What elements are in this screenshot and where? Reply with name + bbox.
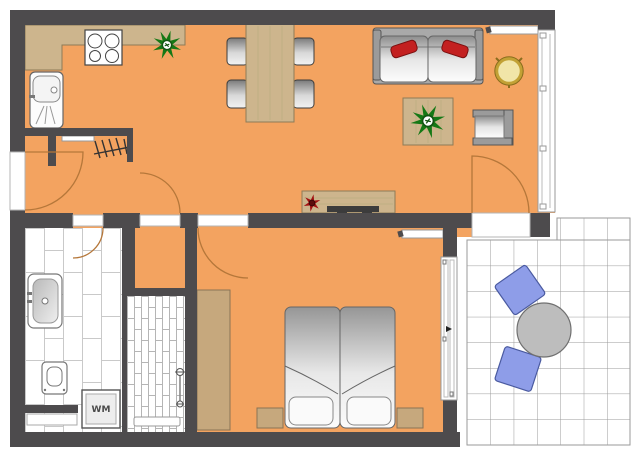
wall-hall-stub bbox=[127, 136, 133, 162]
wall-closet-left bbox=[122, 228, 135, 296]
wall-niche bbox=[48, 136, 56, 166]
wall-shelf-hall bbox=[62, 136, 94, 141]
coffee-table bbox=[403, 98, 453, 145]
wall-bath-stub bbox=[25, 405, 78, 413]
wall-top bbox=[10, 10, 555, 25]
armchair-seat bbox=[475, 116, 504, 138]
kitchen-sink bbox=[29, 72, 63, 128]
sink-drain bbox=[51, 87, 57, 93]
wall-bedroom-right-upper bbox=[443, 228, 457, 257]
terrace-door-step bbox=[472, 213, 530, 237]
wall-mid bbox=[103, 213, 140, 228]
living-room-window bbox=[538, 30, 555, 212]
wall-left-lower bbox=[10, 210, 25, 447]
terrace-round-table bbox=[517, 303, 571, 357]
shower-threshold bbox=[134, 417, 180, 426]
wall-left-upper bbox=[10, 10, 25, 152]
nightstand bbox=[257, 408, 283, 428]
wall-bedroom-right-lower bbox=[443, 400, 457, 432]
nightstand bbox=[397, 408, 423, 428]
pillow bbox=[289, 397, 333, 425]
pillow bbox=[347, 397, 391, 425]
bathroom-shelf bbox=[27, 414, 77, 425]
armchair bbox=[473, 110, 513, 145]
wall-mid bbox=[180, 213, 198, 228]
wall-bottom bbox=[10, 432, 460, 447]
floor-plan-drawing: WM bbox=[0, 0, 640, 454]
wall-shower-partition bbox=[122, 296, 127, 432]
sofa bbox=[373, 28, 483, 84]
entrance-door-opening bbox=[10, 152, 25, 210]
dining-chair bbox=[227, 80, 248, 108]
burner bbox=[88, 34, 102, 48]
dining-chair bbox=[227, 38, 248, 65]
closet-door-opening bbox=[140, 215, 180, 226]
shower-floor-tiles bbox=[127, 296, 185, 432]
wall-mid bbox=[25, 213, 73, 228]
burner bbox=[90, 51, 101, 62]
wardrobe bbox=[197, 290, 230, 430]
wall-kitchen-hall bbox=[25, 128, 133, 136]
bathroom-door-opening bbox=[73, 215, 103, 226]
floor-plan-canvas: WM bbox=[0, 0, 640, 454]
wall-bedroom-bath bbox=[185, 228, 197, 432]
washbasin bbox=[27, 274, 62, 328]
sideboard bbox=[302, 191, 395, 214]
double-bed bbox=[285, 307, 395, 428]
dining-chair bbox=[293, 38, 314, 65]
wall-shower-top bbox=[122, 288, 185, 296]
washing-machine: WM bbox=[82, 390, 120, 428]
wall-mid-corner bbox=[530, 213, 550, 237]
terrace-tiles-notch bbox=[557, 218, 630, 240]
sink-faucet bbox=[29, 95, 35, 98]
wall-mid bbox=[248, 213, 472, 228]
bedroom-sliding-door bbox=[441, 257, 457, 400]
burner bbox=[105, 34, 119, 48]
burner bbox=[106, 50, 119, 63]
wall-shelf-living bbox=[485, 26, 538, 34]
wall-shelf-bedroom bbox=[397, 230, 443, 238]
bedroom-door-opening bbox=[198, 215, 248, 226]
stove bbox=[85, 30, 122, 65]
terrace bbox=[467, 218, 630, 445]
washing-machine-label: WM bbox=[92, 405, 111, 415]
toilet bbox=[42, 362, 67, 394]
basin-faucet bbox=[27, 292, 32, 295]
dining-chair bbox=[293, 80, 314, 108]
basin-drain bbox=[42, 298, 48, 304]
